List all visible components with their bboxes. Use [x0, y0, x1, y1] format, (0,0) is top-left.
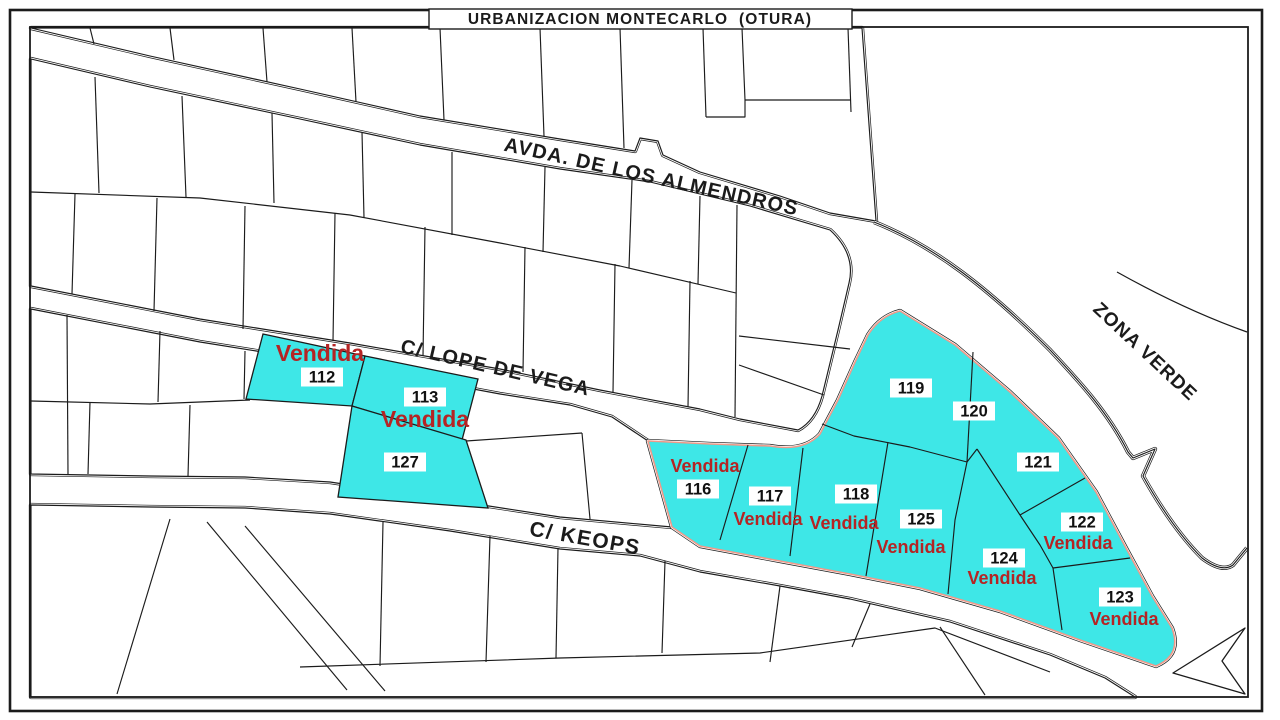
plot-number-112: 112 — [309, 369, 336, 387]
plot-number-117: 117 — [757, 488, 784, 506]
map-canvas: URBANIZACION MONTECARLO (OTURA)AVDA. DE … — [0, 0, 1280, 720]
sold-label-125: Vendida — [876, 537, 946, 557]
plot-number-116: 116 — [685, 481, 712, 499]
sold-label-112: Vendida — [276, 340, 364, 366]
sold-label-117: Vendida — [733, 509, 803, 529]
sold-label-122: Vendida — [1043, 533, 1113, 553]
plot-number-127: 127 — [391, 454, 419, 472]
plot-number-123: 123 — [1106, 589, 1134, 607]
plot-number-119: 119 — [898, 380, 925, 398]
plot-number-120: 120 — [960, 403, 988, 421]
plot-number-122: 122 — [1068, 514, 1096, 532]
sold-label-116: Vendida — [670, 456, 740, 476]
urbanization-map: URBANIZACION MONTECARLO (OTURA)AVDA. DE … — [0, 0, 1280, 720]
plot-number-121: 121 — [1024, 454, 1052, 472]
page-title: URBANIZACION MONTECARLO (OTURA) — [468, 11, 812, 28]
plot-number-124: 124 — [990, 550, 1018, 568]
plot-number-118: 118 — [843, 486, 870, 504]
street-label-zona-verde: ZONA VERDE — [1089, 299, 1201, 406]
sold-label-124: Vendida — [967, 568, 1037, 588]
sold-label-123: Vendida — [1089, 609, 1159, 629]
green-zone-boundary — [1117, 272, 1247, 332]
plot-number-113: 113 — [412, 389, 439, 407]
road-end-arrow — [1173, 628, 1245, 694]
sold-label-113: Vendida — [381, 406, 469, 432]
plot-number-125: 125 — [907, 511, 935, 529]
sold-label-118: Vendida — [809, 513, 879, 533]
